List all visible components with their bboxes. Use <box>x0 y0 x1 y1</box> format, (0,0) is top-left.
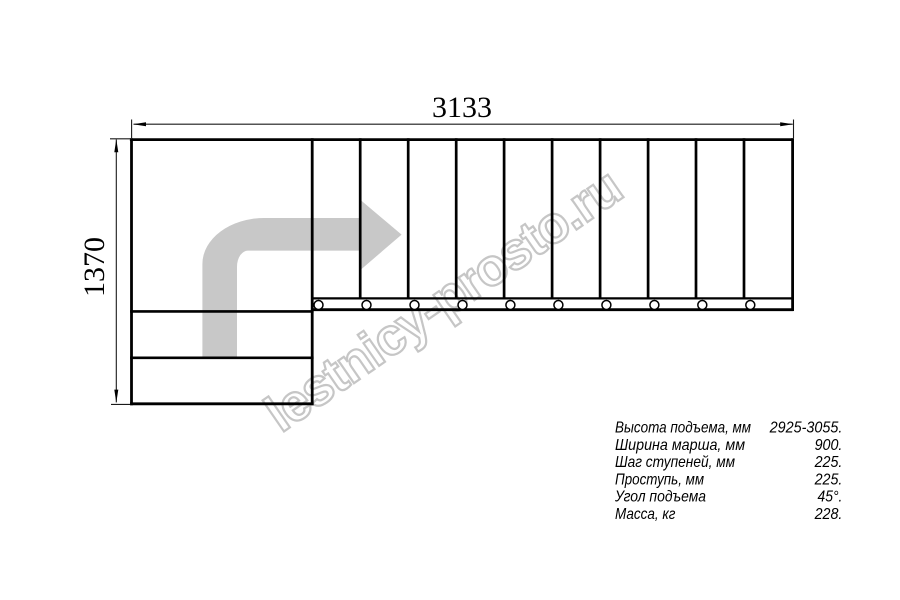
svg-text:2925-3055.: 2925-3055. <box>769 419 843 436</box>
svg-text:228.: 228. <box>814 506 843 523</box>
svg-text:Угол подъема: Угол подъема <box>614 489 706 506</box>
svg-text:Масса, кг: Масса, кг <box>615 506 676 523</box>
svg-text:Проступь, мм: Проступь, мм <box>615 471 704 488</box>
svg-text:Высота подъема, мм: Высота подъема, мм <box>615 419 751 436</box>
svg-text:3133: 3133 <box>432 91 492 124</box>
svg-text:225.: 225. <box>814 471 843 488</box>
svg-text:1370: 1370 <box>78 237 111 297</box>
svg-text:225.: 225. <box>814 454 843 471</box>
svg-text:45°.: 45°. <box>818 489 843 506</box>
svg-text:Шаг ступеней, мм: Шаг ступеней, мм <box>615 454 735 471</box>
svg-text:900.: 900. <box>815 437 843 454</box>
svg-text:Ширина марша, мм: Ширина марша, мм <box>615 437 745 454</box>
